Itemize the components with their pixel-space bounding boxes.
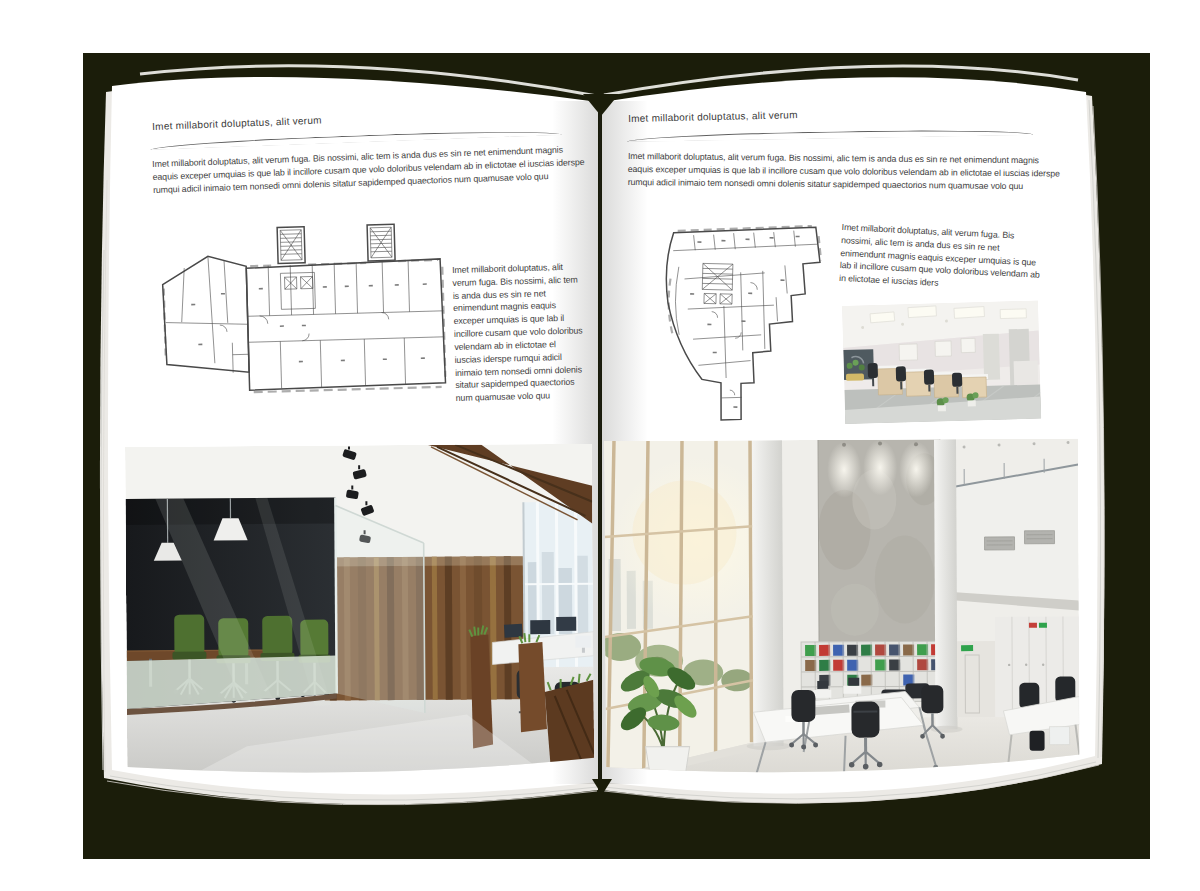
book-pages-base (0, 0, 1200, 891)
right-page-face (602, 77, 1098, 793)
magazine-spread-mockup: Imet millaborit doluptatus, alit verum I… (0, 0, 1200, 891)
left-page-face (108, 77, 598, 795)
